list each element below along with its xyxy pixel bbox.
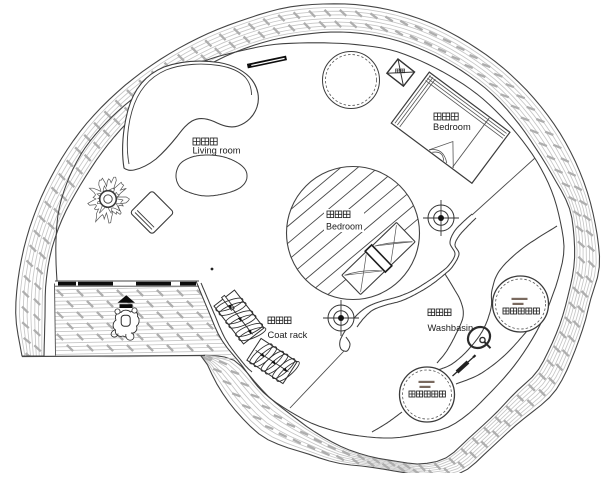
svg-text:Living room: Living room xyxy=(193,146,241,156)
svg-text:Washbasin: Washbasin xyxy=(428,323,474,333)
svg-text:Bedroom: Bedroom xyxy=(433,122,471,132)
svg-text:Bedroom: Bedroom xyxy=(326,222,363,232)
svg-text:Coat rack: Coat rack xyxy=(268,330,308,340)
